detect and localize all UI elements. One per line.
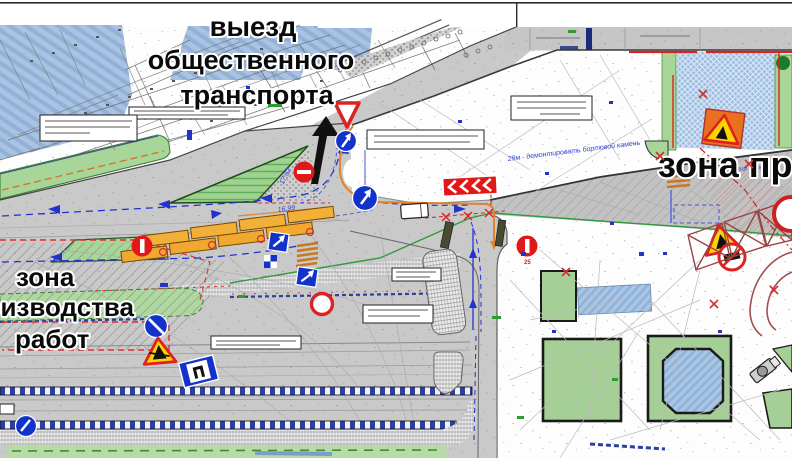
svg-text:25: 25: [524, 260, 531, 266]
svg-text:выезд: выезд: [210, 11, 297, 42]
svg-text:зона прои: зона прои: [658, 144, 792, 185]
svg-text:производства: производства: [0, 292, 135, 322]
svg-text:зона: зона: [16, 262, 75, 292]
svg-text:общественного: общественного: [148, 45, 355, 75]
svg-text:работ: работ: [15, 324, 90, 354]
svg-text:транспорта: транспорта: [180, 80, 334, 110]
